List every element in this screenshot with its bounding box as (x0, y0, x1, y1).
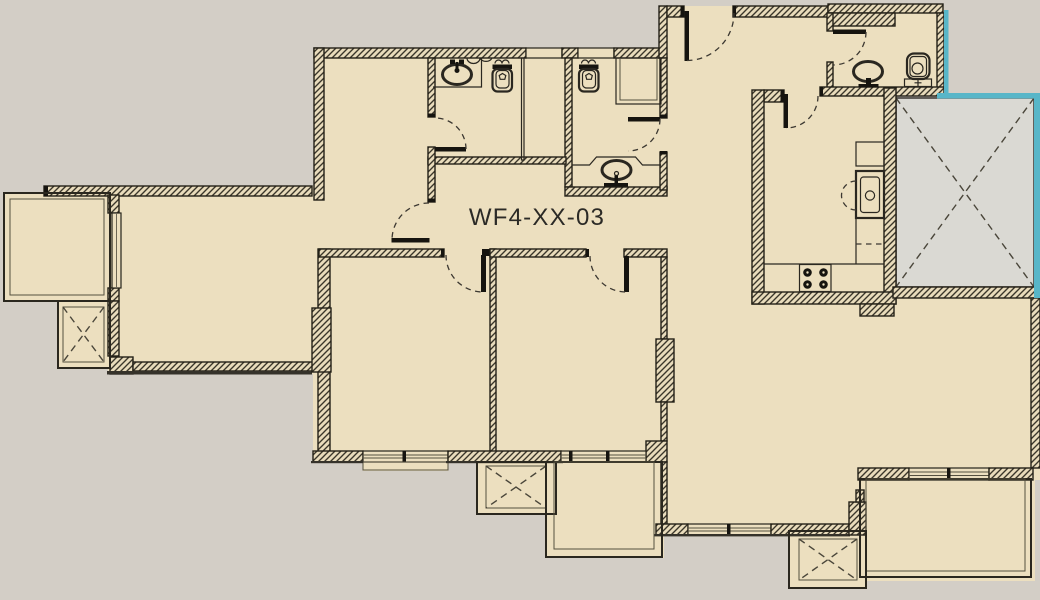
svg-text:WF4-XX-03: WF4-XX-03 (469, 204, 605, 231)
